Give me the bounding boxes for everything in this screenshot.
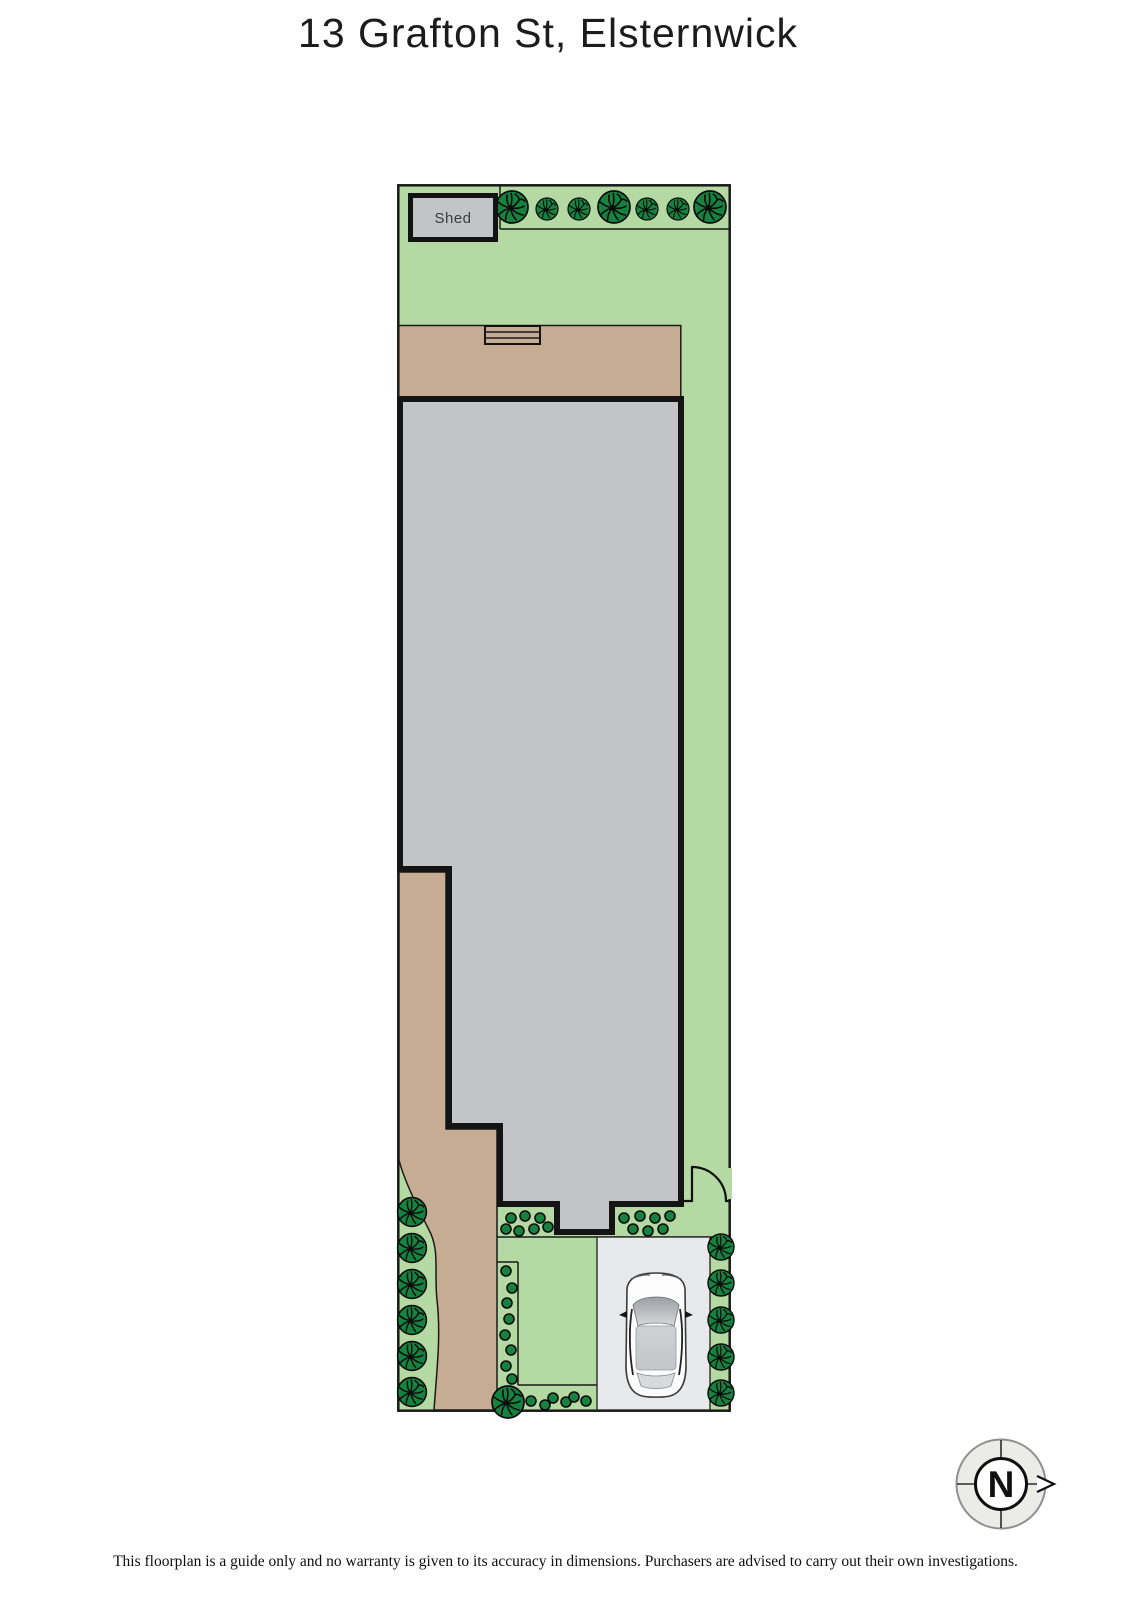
shrub-icon xyxy=(708,1234,734,1260)
tree-icon xyxy=(536,198,558,220)
tree-icon xyxy=(568,198,590,220)
deck-steps xyxy=(485,326,540,344)
shrub-icon xyxy=(398,1306,427,1335)
tree-icon xyxy=(694,191,726,223)
shrub-icon xyxy=(398,1342,427,1371)
tree-icon xyxy=(496,191,528,223)
shrub-icon xyxy=(398,1234,427,1263)
shrub-icon xyxy=(492,1386,524,1418)
tree-icon xyxy=(636,198,658,220)
car-windshield xyxy=(633,1297,679,1326)
shrub-icon xyxy=(708,1307,734,1333)
tree-icon xyxy=(667,198,689,220)
shrub-icon xyxy=(398,1378,427,1407)
shed: Shed xyxy=(411,196,496,240)
deck xyxy=(399,326,681,398)
shrub-icon xyxy=(708,1270,734,1296)
north-label: N xyxy=(988,1464,1015,1505)
shed-label: Shed xyxy=(434,210,471,227)
shrub-icon xyxy=(398,1270,427,1299)
shrub-icon xyxy=(398,1198,427,1227)
tree-icon xyxy=(598,191,630,223)
disclaimer-text: This floorplan is a guide only and no wa… xyxy=(0,1553,1131,1571)
car-icon xyxy=(619,1273,693,1397)
floorplan-page: 13 Grafton St, Elsternwick xyxy=(0,0,1131,1600)
shrub-icon xyxy=(708,1380,734,1406)
shrub-icon xyxy=(708,1344,734,1370)
site-plan: Shed xyxy=(0,0,1131,1600)
compass: N xyxy=(957,1440,1055,1529)
